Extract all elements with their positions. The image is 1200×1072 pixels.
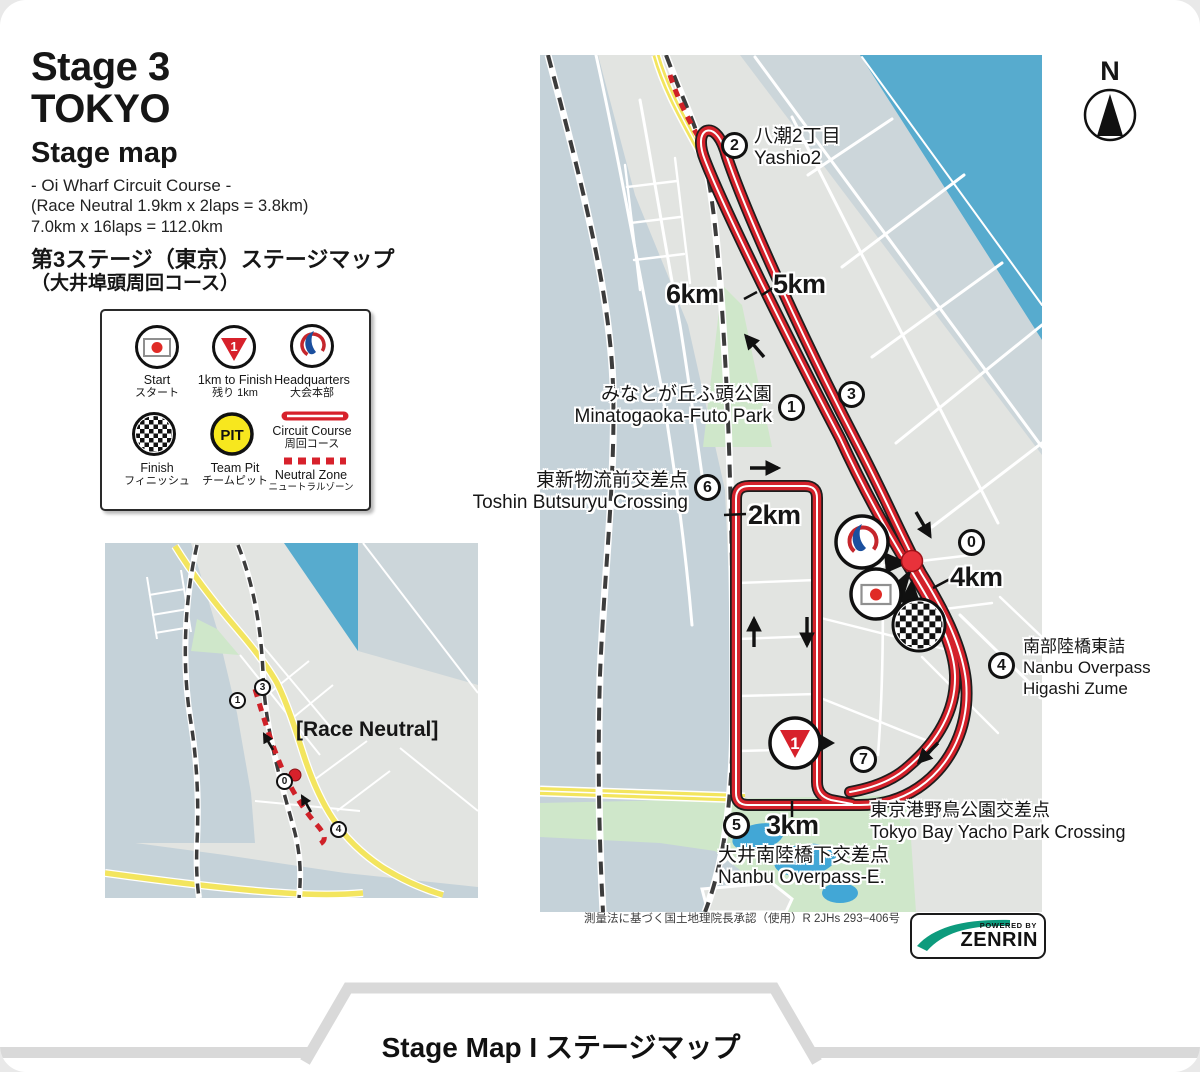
small-checkpoint-1: 1 <box>229 692 246 709</box>
checkpoint-5: 5 <box>723 812 750 839</box>
km-marker-3: 3km <box>766 810 819 841</box>
compass-north-label: N <box>1083 56 1137 87</box>
circuit-course-line-icon <box>280 409 350 423</box>
checkpoint-2: 2 <box>721 132 748 159</box>
start-flag-icon <box>134 324 180 370</box>
label-toshin: 東新物流前交差点 Toshin Butsuryu Crossing <box>473 470 688 514</box>
distance-info: 7.0km x 16laps = 112.0km <box>31 219 394 236</box>
small-checkpoint-4: 4 <box>330 821 347 838</box>
legend-neutral-zone: Neutral Zone ニュートラルゾーン <box>254 468 368 494</box>
km-marker-2: 2km <box>748 500 801 531</box>
checkpoint-6: 6 <box>694 474 721 501</box>
stage-map-page: Stage 3 TOKYO Stage map - Oi Wharf Circu… <box>0 0 1200 1072</box>
label-minatogaoka: みなとが丘ふ頭公園 Minatogaoka-Futo Park <box>575 384 773 428</box>
zenrin-badge: POWERED BY ZENRIN <box>910 913 1046 959</box>
km-marker-6: 6km <box>666 279 719 310</box>
checkpoint-7: 7 <box>850 746 877 773</box>
header-block: Stage 3 TOKYO Stage map - Oi Wharf Circu… <box>31 46 394 294</box>
km-marker-4: 4km <box>950 562 1003 593</box>
checkpoint-0: 0 <box>958 529 985 556</box>
course-name: - Oi Wharf Circuit Course - <box>31 177 394 195</box>
map-attribution: 測量法に基づく国土地理院長承認（使用）R 2JHs 293−406号 <box>584 910 900 926</box>
small-checkpoint-0: 0 <box>276 773 293 790</box>
footer-title: Stage Map I ステージマップ <box>0 1026 1122 1066</box>
checkpoint-4: 4 <box>988 652 1015 679</box>
page-title: Stage map <box>31 138 394 168</box>
team-pit-icon: PIT <box>209 411 255 457</box>
headquarters-icon <box>289 323 335 369</box>
legend-headquarters: Headquarters 大会本部 <box>262 373 362 400</box>
subtitle-jp: （大井埠頭周回コース） <box>31 274 394 294</box>
label-yacho: 東京港野鳥公園交差点 Tokyo Bay Yacho Park Crossing <box>870 799 1125 843</box>
svg-text:1: 1 <box>790 734 799 753</box>
small-checkpoint-3: 3 <box>254 679 271 696</box>
checkpoint-1: 1 <box>778 394 805 421</box>
legend-box: Start スタート 1 1km to Finish 残り 1km Headqu… <box>100 309 371 511</box>
neutral-info: (Race Neutral 1.9km x 2laps = 3.8km) <box>31 198 394 215</box>
svg-text:1: 1 <box>230 339 237 354</box>
legend-circuit-course: Circuit Course 周回コース <box>260 424 364 451</box>
city-title: TOKYO <box>31 88 394 130</box>
label-nanbu-higashi: 南部陸橋東詰 Nanbu Overpass Higashi Zume <box>1023 636 1151 699</box>
zenrin-brand: ZENRIN <box>961 929 1038 952</box>
neutral-zone-dashes-icon <box>282 456 348 466</box>
one-km-to-finish-icon: 1 <box>211 324 257 370</box>
finish-checkered-icon <box>131 411 177 457</box>
race-neutral-label: [Race Neutral] <box>296 718 438 742</box>
checkpoint-3: 3 <box>838 381 865 408</box>
svg-text:PIT: PIT <box>220 427 243 444</box>
km-marker-5: 5km <box>773 269 826 300</box>
start-finish-dot <box>902 551 923 572</box>
compass-icon <box>1083 88 1137 142</box>
label-nanbu-e: 大井南陸橋下交差点 Nanbu Overpass-E. <box>718 845 889 889</box>
label-yashio: 八潮2丁目 Yashio2 <box>754 126 841 170</box>
title-jp: 第3ステージ（東京）ステージマップ <box>31 248 394 271</box>
stage-title: Stage 3 <box>31 46 394 88</box>
